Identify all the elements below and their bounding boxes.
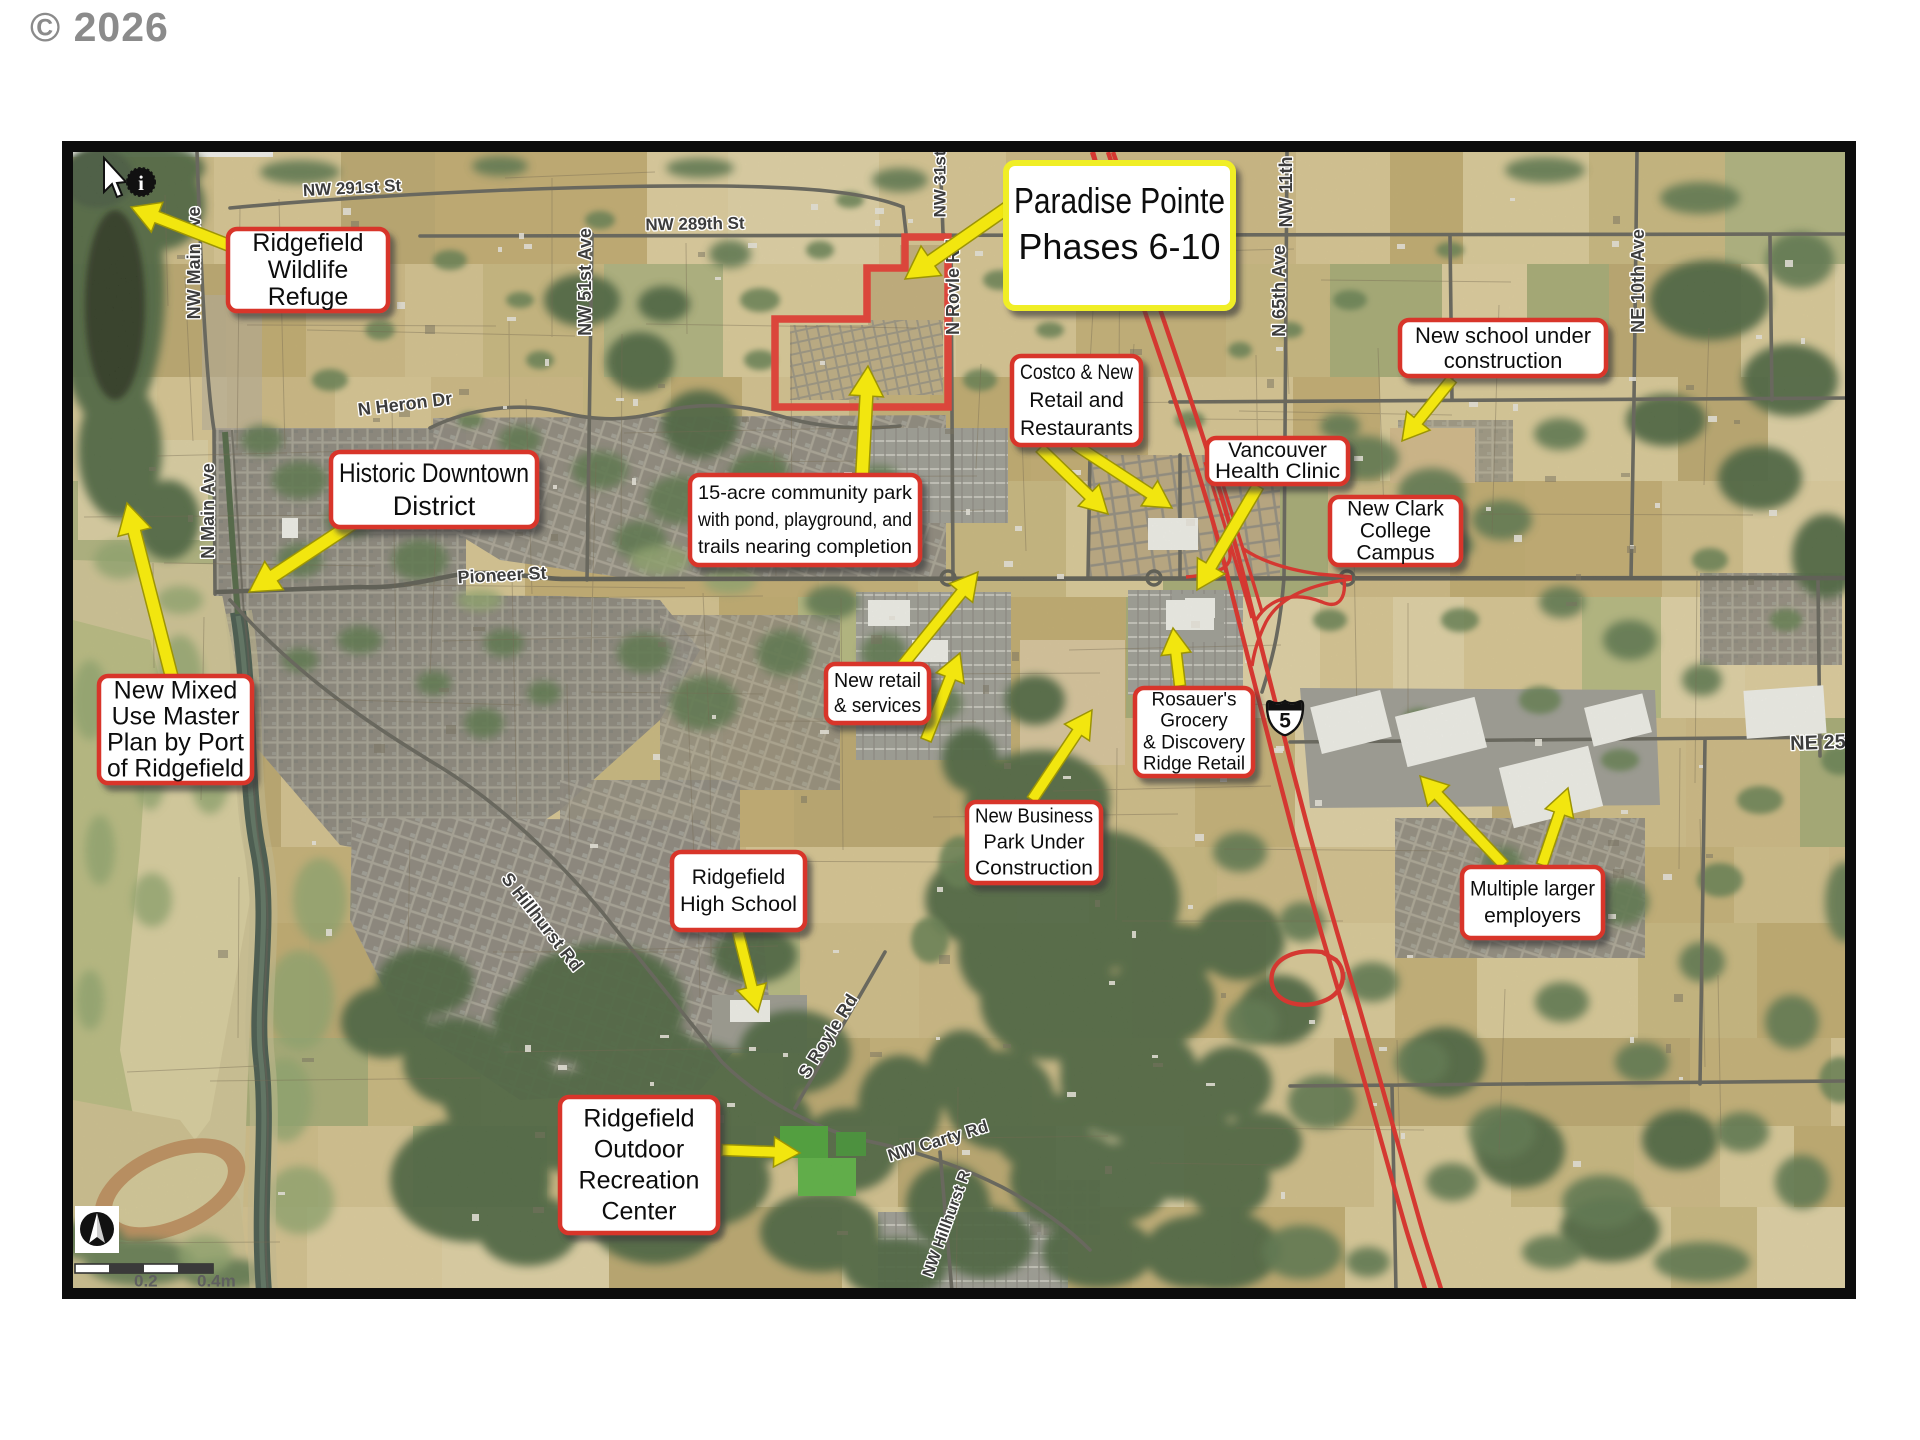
svg-text:NW 31st: NW 31st [931,150,950,217]
svg-text:Campus: Campus [1356,542,1434,565]
svg-text:Vancouver: Vancouver [1228,439,1327,462]
svg-text:Multiple larger: Multiple larger [1470,878,1595,901]
svg-text:Construction: Construction [975,858,1093,880]
svg-text:Park Under: Park Under [983,832,1084,854]
svg-text:Restaurants: Restaurants [1020,417,1133,440]
svg-text:NE 25: NE 25 [1790,731,1846,755]
svg-text:& services: & services [834,695,921,717]
svg-text:Paradise Pointe: Paradise Pointe [1014,180,1225,221]
svg-text:New Business: New Business [975,806,1093,828]
svg-text:Ridgefield: Ridgefield [252,229,363,257]
svg-text:trails nearing completion: trails nearing completion [698,536,912,558]
svg-text:employers: employers [1484,905,1581,928]
svg-text:5: 5 [1279,709,1291,732]
svg-text:Rosauer's: Rosauer's [1152,689,1237,710]
svg-text:New Clark: New Clark [1347,498,1444,521]
svg-text:Phases 6-10: Phases 6-10 [1018,226,1220,267]
svg-text:with pond, playground, and: with pond, playground, and [697,509,912,531]
svg-text:N Main Ave: N Main Ave [198,463,218,559]
svg-text:Ridgefield: Ridgefield [583,1105,694,1133]
svg-text:© 2026: © 2026 [30,4,169,50]
svg-text:& Discovery: & Discovery [1143,732,1245,753]
svg-text:N 65th Ave: N 65th Ave [1269,245,1289,337]
svg-text:NW 289th St: NW 289th St [645,214,745,235]
svg-text:Historic Downtown: Historic Downtown [339,458,529,488]
svg-text:District: District [393,491,476,521]
svg-text:New Mixed: New Mixed [114,677,238,705]
svg-text:construction: construction [1444,348,1563,373]
svg-text:New school under: New school under [1415,323,1591,348]
svg-text:0.2: 0.2 [134,1272,158,1291]
svg-text:College: College [1360,520,1431,543]
svg-text:15-acre community park: 15-acre community park [698,482,912,504]
svg-text:NW 11th: NW 11th [1276,156,1296,227]
svg-text:Recreation: Recreation [579,1167,700,1195]
svg-text:Use Master: Use Master [112,703,240,731]
svg-text:Ridgefield: Ridgefield [692,866,785,889]
svg-text:Outdoor: Outdoor [594,1136,684,1164]
svg-text:Health Clinic: Health Clinic [1215,460,1340,483]
svg-text:Retail and: Retail and [1029,389,1124,412]
svg-text:NW 51st Ave: NW 51st Ave [575,228,595,336]
svg-text:Ridge Retail: Ridge Retail [1143,754,1245,775]
svg-text:i: i [138,171,144,195]
svg-text:Plan by Port: Plan by Port [107,729,244,757]
svg-text:Refuge: Refuge [268,283,349,311]
svg-text:High School: High School [680,893,797,916]
svg-text:of Ridgefield: of Ridgefield [107,755,244,783]
svg-text:New retail: New retail [834,670,921,692]
svg-text:Grocery: Grocery [1160,711,1228,732]
svg-text:Wildlife: Wildlife [268,256,349,284]
svg-text:0.4m: 0.4m [197,1272,236,1291]
svg-text:Costco & New: Costco & New [1020,361,1134,384]
svg-text:NE 10th Ave: NE 10th Ave [1628,229,1648,333]
svg-text:Center: Center [601,1198,676,1226]
